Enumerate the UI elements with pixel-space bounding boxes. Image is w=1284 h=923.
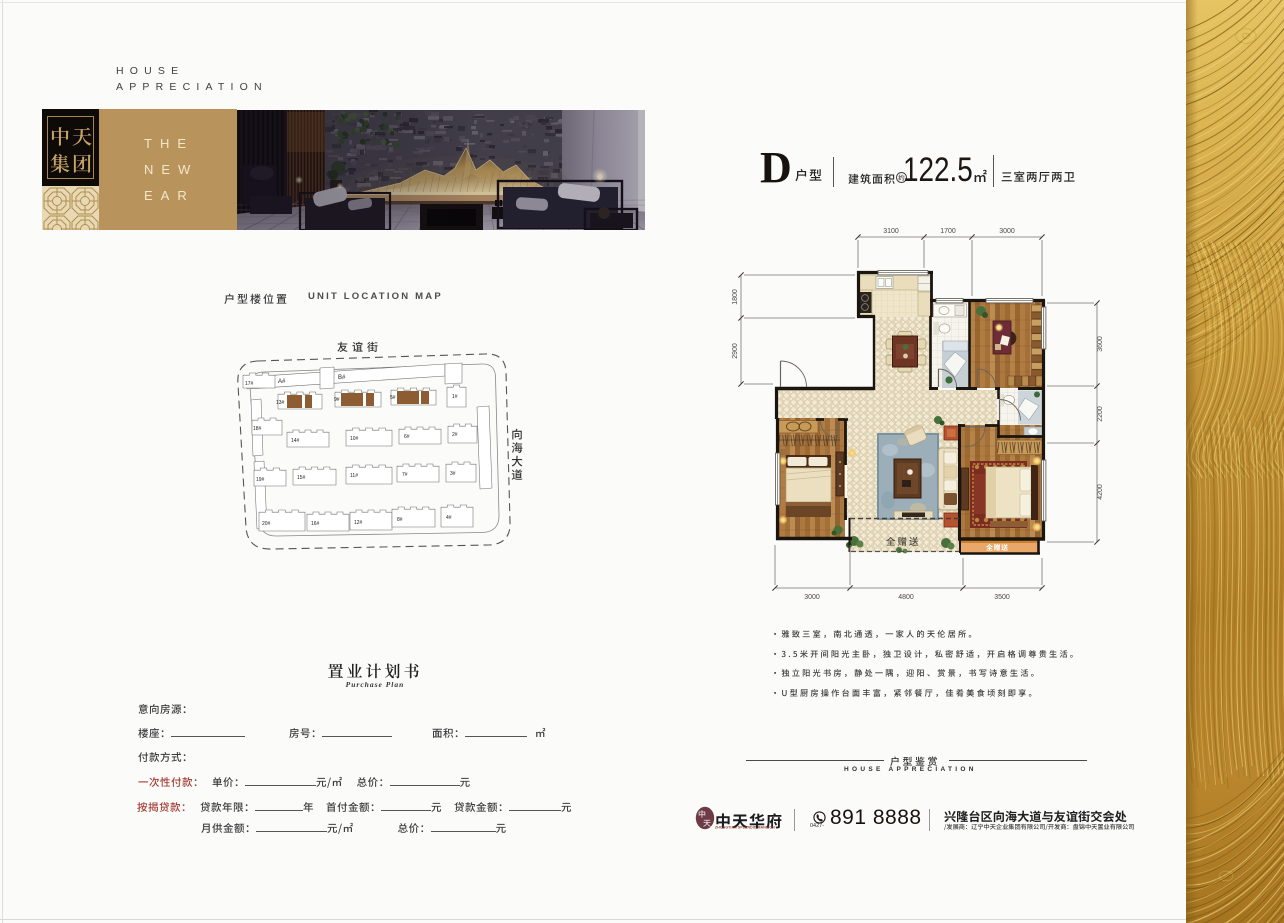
- svg-text:3000: 3000: [804, 594, 820, 601]
- svg-text:3000: 3000: [999, 228, 1015, 235]
- svg-text:全赠送: 全赠送: [986, 543, 1009, 553]
- svg-text:全赠送: 全赠送: [886, 534, 921, 548]
- svg-text:4800: 4800: [898, 594, 914, 601]
- svg-text:3600: 3600: [1097, 336, 1104, 352]
- svg-text:3500: 3500: [994, 594, 1010, 601]
- svg-text:2200: 2200: [1097, 406, 1104, 422]
- svg-text:3100: 3100: [883, 228, 899, 235]
- svg-text:1700: 1700: [940, 228, 956, 235]
- svg-text:4200: 4200: [1097, 484, 1104, 500]
- svg-text:1800: 1800: [732, 289, 739, 305]
- svg-text:2900: 2900: [732, 343, 739, 359]
- svg-text:天: 天: [703, 818, 711, 829]
